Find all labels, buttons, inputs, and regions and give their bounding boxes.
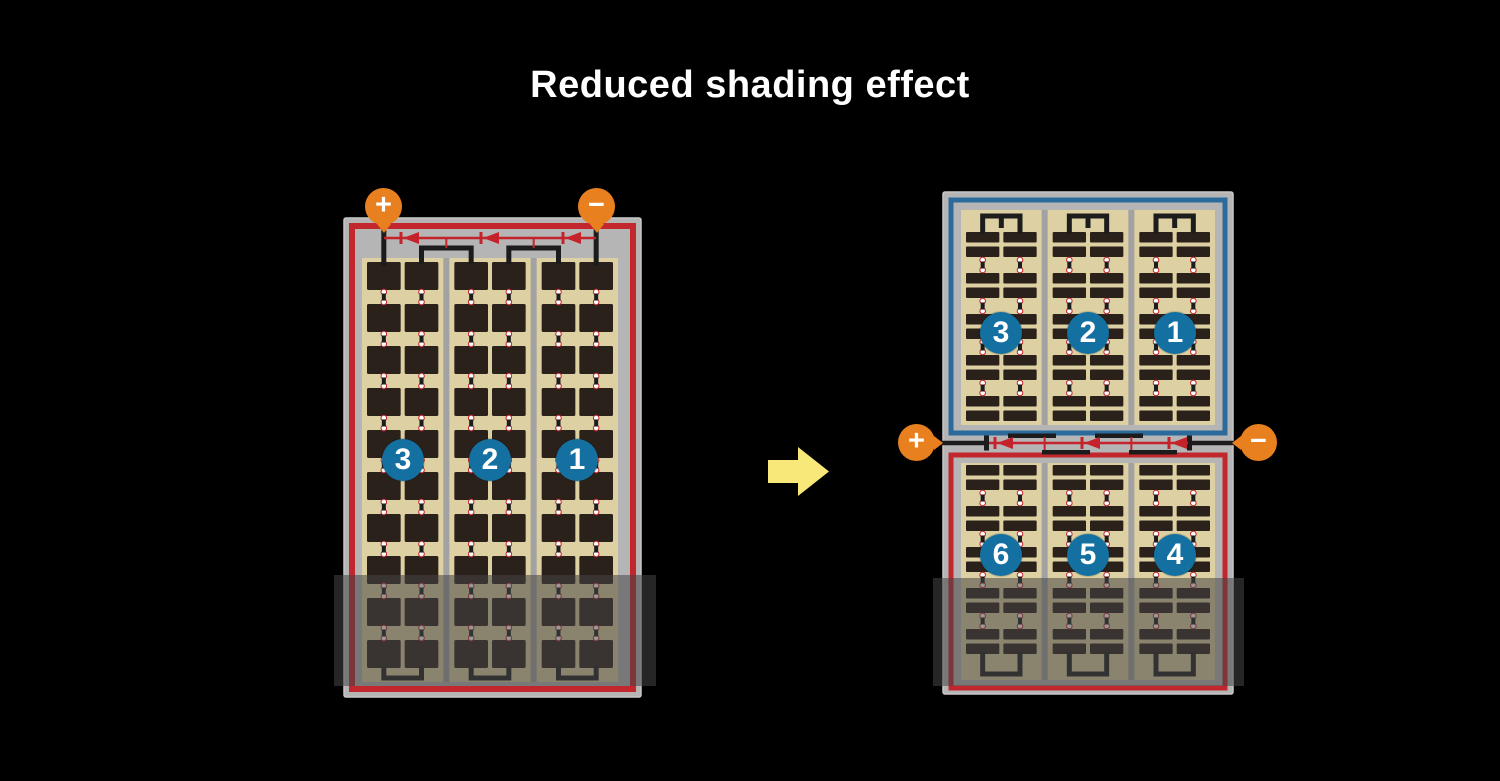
string-number-circle: 5 [1067,534,1109,576]
plus-icon: + [375,191,392,220]
string-number-circle: 2 [1067,312,1109,354]
after-panel-drawing [885,180,1275,705]
string-number-circle: 1 [556,439,598,481]
plus-icon: + [908,427,925,456]
transition-arrow-icon [760,440,840,502]
string-number-circle: 4 [1154,534,1196,576]
string-number-circle: 6 [980,534,1022,576]
string-number-circle: 3 [382,439,424,481]
positive-terminal-before: + [365,188,402,225]
terminal-pointer-icon [590,224,604,233]
diagram-canvas: Reduced shading effect + − 3 2 1 + − 3 2… [0,0,1500,781]
terminal-pointer-icon [377,224,391,233]
string-number-circle: 3 [980,312,1022,354]
string-number-circle: 2 [469,439,511,481]
page-title: Reduced shading effect [0,64,1500,107]
right-arrow-shape [768,447,829,496]
before-panel-shading [334,575,656,686]
terminal-pointer-icon [1232,436,1241,450]
negative-terminal-before: − [578,188,615,225]
terminal-pointer-icon [934,436,943,450]
minus-icon: − [1250,427,1267,456]
string-number-circle: 1 [1154,312,1196,354]
negative-terminal-after: − [1240,424,1277,461]
positive-terminal-after: + [898,424,935,461]
after-panel-shading [933,578,1244,686]
minus-icon: − [588,191,605,220]
